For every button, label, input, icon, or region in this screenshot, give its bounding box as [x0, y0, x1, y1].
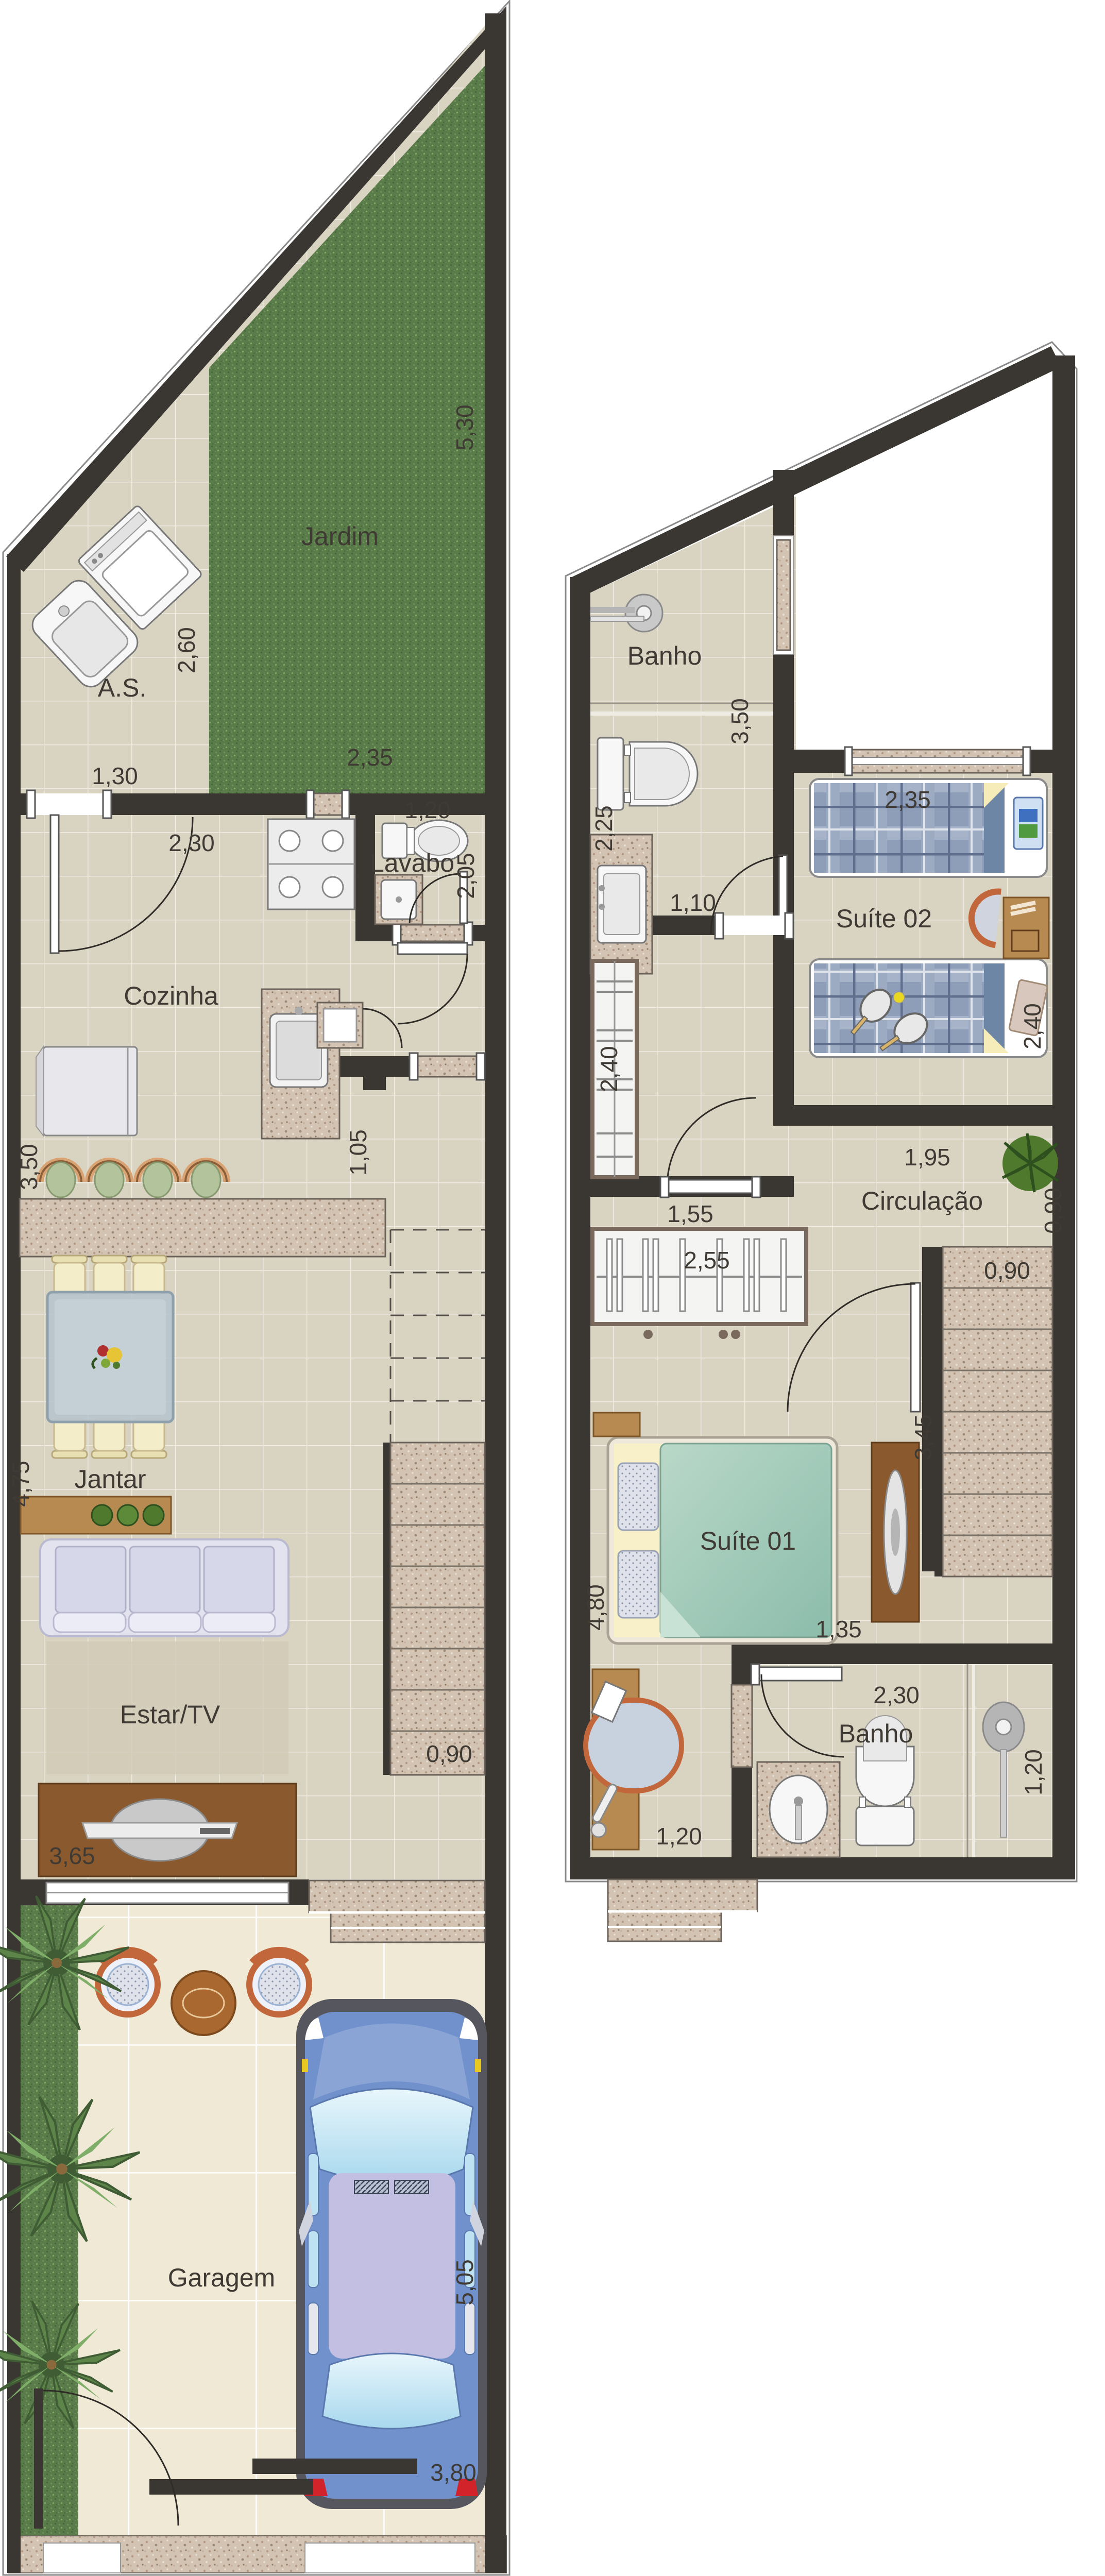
- room-label-lavabo: Lavabo: [370, 849, 454, 877]
- window-suite02: [845, 747, 1030, 775]
- dim-closet: 2,55: [684, 1247, 730, 1274]
- dining-set: [47, 1256, 173, 1458]
- round-sink: [757, 1762, 840, 1857]
- sofa: [40, 1539, 288, 1636]
- dim-circulacao-width: 1,95: [904, 1144, 950, 1171]
- dim-banho1-shower: 1,20: [1020, 1749, 1047, 1795]
- room-label-suite02: Suíte 02: [836, 904, 932, 933]
- room-label-banho1: Banho: [839, 1719, 913, 1748]
- room-label-jardim: Jardim: [301, 522, 379, 551]
- sideboard: [21, 1497, 171, 1534]
- dim-jardim-width: 2,35: [347, 744, 393, 771]
- gate-apron: [43, 2543, 121, 2573]
- dim-banho1-passage: 1,35: [815, 1616, 862, 1642]
- dim-suite02-height: 2,40: [1019, 1003, 1046, 1049]
- dim-cozinha-width: 2,30: [168, 829, 215, 856]
- dim-as-width: 1,30: [92, 762, 138, 789]
- stove-icon: [268, 819, 354, 909]
- patio-chair: [249, 1951, 309, 2014]
- porch-steps: [309, 1880, 485, 1942]
- dim-stairs-upper: 0,90: [984, 1257, 1030, 1284]
- window-banho1: [732, 1685, 752, 1767]
- dim-as-height: 2,60: [173, 627, 200, 673]
- dim-garagem-height: 5,05: [451, 2259, 478, 2306]
- dim-banho1-door: 1,20: [656, 1823, 702, 1850]
- upper-floor-plan: Banho 3,50 2,25 1,10 2,35 Suíte 02 2,40 …: [566, 342, 1077, 1941]
- dim-suite02-width: 2,35: [885, 786, 931, 813]
- room-label-circulacao: Circulação: [861, 1187, 983, 1215]
- floor-plan-drawing: Jardim 5,30 2,60 A.S. 1,30 2,35 2,30 1,2…: [0, 0, 1105, 2576]
- dim-lavabo-width: 1,20: [404, 796, 451, 823]
- room-label-garagem: Garagem: [168, 2263, 275, 2292]
- room-label-cozinha: Cozinha: [124, 981, 218, 1010]
- dim-stairs-ground: 0,90: [426, 1740, 472, 1767]
- floor-plan-page: Jardim 5,30 2,60 A.S. 1,30 2,35 2,30 1,2…: [0, 0, 1105, 2576]
- vanity-sink-icon: [598, 866, 646, 943]
- room-label-suite01: Suíte 01: [700, 1527, 796, 1555]
- nightstand: [593, 1413, 640, 1436]
- window-banho2: [773, 536, 794, 654]
- room-label-as: A.S.: [98, 673, 146, 702]
- pedestrian-gate-leaf: [34, 2388, 43, 2529]
- fridge-icon: [36, 1047, 137, 1136]
- dim-lavabo-height: 2,05: [452, 853, 479, 899]
- room-label-jantar: Jantar: [75, 1465, 146, 1494]
- car: [296, 1999, 487, 2509]
- dim-wardrobe: 2,40: [596, 1046, 622, 1092]
- toilet-icon: [598, 738, 698, 810]
- sliding-gate-bar: [252, 2459, 417, 2474]
- dim-banho2-door: 1,10: [670, 889, 716, 916]
- dim-suite01-length: 4,80: [582, 1584, 609, 1631]
- room-label-estar: Estar/TV: [120, 1700, 220, 1729]
- dim-cozinha-height: 3,50: [15, 1144, 42, 1190]
- bar-counter: [20, 1199, 385, 1257]
- dresser-tv: [872, 1443, 919, 1622]
- dim-estar-width: 3,65: [49, 1842, 95, 1869]
- stairs-upper: [934, 1247, 1052, 1577]
- dim-circulacao-height: 0,90: [1040, 1188, 1066, 1234]
- nightstand: [1004, 897, 1049, 958]
- dim-banho1-width: 2,30: [873, 1682, 920, 1708]
- upper-entry-steps: [608, 1879, 757, 1941]
- dim-passage: 1,55: [667, 1200, 713, 1227]
- room-label-banho2: Banho: [627, 641, 702, 670]
- bed-single: [810, 959, 1048, 1060]
- dim-banho2-height: 3,50: [726, 698, 753, 744]
- dim-garagem-width: 3,80: [430, 2459, 477, 2486]
- dim-jardim-right: 5,30: [451, 404, 478, 451]
- dim-banho2-width: 2,25: [590, 805, 617, 852]
- closet-shelves: [592, 1229, 806, 1339]
- room-jardim: [209, 66, 485, 793]
- dim-jantar-height: 4,75: [7, 1461, 34, 1507]
- dim-suite01-height: 3,45: [910, 1414, 937, 1461]
- dim-hall-width: 1,05: [345, 1129, 371, 1176]
- ground-floor-plan: Jardim 5,30 2,60 A.S. 1,30 2,35 2,30 1,2…: [0, 1, 509, 2575]
- driveway-apron: [305, 2543, 475, 2573]
- patio-table: [172, 1971, 235, 2035]
